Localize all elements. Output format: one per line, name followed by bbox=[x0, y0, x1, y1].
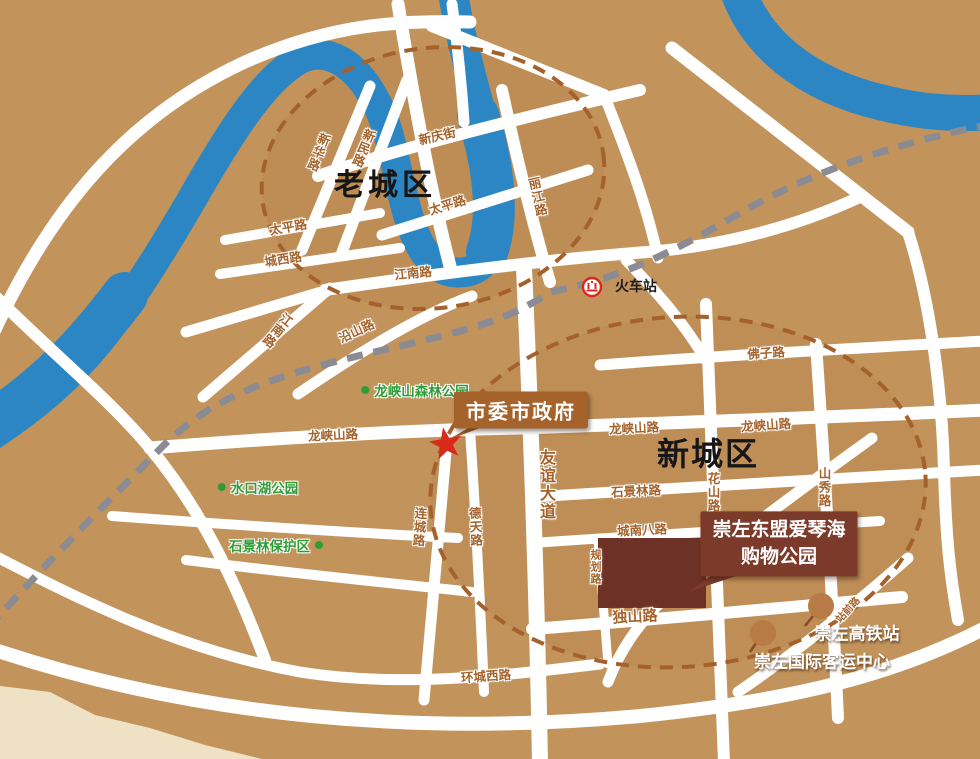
passenger-center-label: 崇左国际客运中心 bbox=[754, 648, 890, 673]
park-label-shijinglin-reserve: 石景林保护区 bbox=[229, 535, 323, 555]
railway-logo-ring bbox=[583, 278, 601, 296]
hsr-station-dot bbox=[808, 593, 834, 619]
road-label-detian: 德天路 bbox=[464, 506, 485, 547]
passenger-center-dot bbox=[750, 620, 776, 646]
road-label-longxiashan-3: 龙峡山路 bbox=[740, 413, 791, 435]
shopping-park-badge: 崇左东盟爱琴海 购物公园 bbox=[700, 511, 857, 576]
old-town-label: 老城区 bbox=[334, 160, 436, 204]
map-base-graphics bbox=[0, 0, 980, 759]
road-label-dushan: 独山路 bbox=[612, 604, 658, 627]
park-name: 水口湖公园 bbox=[231, 477, 299, 497]
road-label-longxiashan-1: 龙峡山路 bbox=[308, 423, 359, 445]
park-label-longxiashan-forest: 龙峡山森林公园 bbox=[361, 380, 469, 400]
road-label-fozi: 佛子路 bbox=[747, 341, 786, 363]
park-label-shuikouhu: 水口湖公园 bbox=[218, 477, 299, 497]
road-label-longxiashan-2: 龙峡山路 bbox=[609, 416, 660, 438]
park-dot-icon bbox=[218, 483, 226, 491]
park-name: 石景林保护区 bbox=[229, 535, 310, 555]
road-label-liancheng: 连城路 bbox=[408, 506, 430, 548]
shopping-park-block bbox=[598, 538, 706, 608]
road-label-shanxiu: 山秀路 bbox=[815, 467, 834, 508]
railway-station-icon bbox=[583, 278, 601, 296]
shopping-park-line1: 崇左东盟爱琴海 bbox=[712, 517, 845, 544]
road-label-guihua: 规划路 bbox=[587, 549, 603, 585]
river-bend-widening bbox=[478, 115, 494, 252]
railway-station-label: 火车站 bbox=[615, 276, 657, 296]
road-label-chengnanba: 城南八路 bbox=[617, 518, 668, 540]
road-label-youyi: 友谊大道 bbox=[533, 449, 557, 521]
road-label-shijinglin: 石景林路 bbox=[611, 479, 662, 501]
new-town-label: 新城区 bbox=[657, 429, 759, 475]
road-label-huanchengxi: 环城西路 bbox=[460, 664, 511, 686]
hsr-station-label: 崇左高铁站 bbox=[815, 620, 900, 645]
park-dot-icon bbox=[315, 541, 323, 549]
park-dot-icon bbox=[361, 386, 369, 394]
government-badge: 市委市政府 bbox=[454, 392, 588, 429]
shopping-park-line2: 购物公园 bbox=[712, 544, 845, 571]
road-label-huashan: 花山路 bbox=[704, 472, 723, 513]
city-map: 老城区 新城区 新华路 新民路 新庆街 太平路 太平路 丽江路 城西路 江南路 … bbox=[0, 0, 980, 759]
road-label-jiangnan-1: 江南路 bbox=[393, 261, 432, 284]
